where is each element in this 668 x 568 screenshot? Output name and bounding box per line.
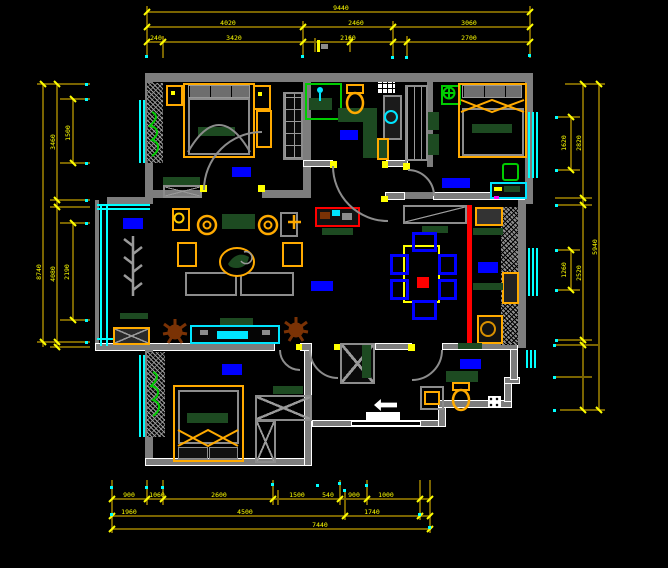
furniture-curves — [175, 85, 525, 446]
dim-bot-r1c[interactable]: 2600 — [211, 491, 227, 499]
door-arc-bedroom2 — [280, 350, 300, 370]
dim-left-total[interactable]: 8740 — [35, 264, 43, 280]
linework-layer: 9440 4020 2460 3060 240 3420 2160 2700 9… — [0, 0, 668, 568]
dim-bot-r1d[interactable]: 1500 — [289, 491, 305, 499]
sofa-right-star — [288, 215, 301, 229]
door-arc-entry-closet — [310, 350, 338, 378]
sofa-swirl-left — [198, 216, 216, 234]
dim-bot-r2c[interactable]: 1740 — [364, 508, 380, 516]
dim-left-m2[interactable]: 4080 — [49, 266, 57, 282]
dim-bot-r1f[interactable]: 900 — [348, 491, 360, 499]
dim-top-r2a[interactable]: 4020 — [220, 19, 236, 27]
dim-top-r3a[interactable]: 240 — [150, 34, 162, 42]
dimension-texts[interactable]: 9440 4020 2460 3060 240 3420 2160 2700 9… — [35, 4, 599, 529]
dim-left-m1[interactable]: 3460 — [49, 134, 57, 150]
dim-top-total[interactable]: 9440 — [333, 4, 349, 12]
sofa-swirl-right-inner — [265, 222, 272, 229]
sofa-swirl-right — [259, 216, 277, 234]
kitchen-basin-circle — [481, 322, 495, 336]
dim-bot-r1g[interactable]: 1000 — [378, 491, 394, 499]
dim-top-r3c[interactable]: 2160 — [340, 34, 356, 42]
plant-bay-branch — [124, 236, 142, 296]
plant-bedroom1 — [150, 112, 158, 156]
dim-bot-r1a[interactable]: 900 — [123, 491, 135, 499]
dim-bot-r1e[interactable]: 540 — [322, 491, 334, 499]
dim-left-i2[interactable]: 2190 — [63, 264, 71, 280]
toilet-bath2 — [453, 390, 469, 410]
dim-right-i2[interactable]: 1260 — [560, 262, 568, 278]
sofa-left-table-dish — [175, 214, 184, 223]
dim-bot-r1b[interactable]: 1060 — [149, 491, 165, 499]
dim-right-m2[interactable]: 2520 — [575, 265, 583, 281]
washer-drum — [385, 111, 397, 123]
door-arc-bedroom1 — [204, 132, 262, 190]
door-arc-bath1 — [333, 166, 388, 221]
sofa-swirl-left-inner — [204, 222, 211, 229]
plants — [124, 112, 308, 416]
dim-left-i1[interactable]: 1500 — [64, 125, 72, 141]
dimension-lines — [37, 6, 605, 533]
door-arc-bath2 — [412, 350, 442, 380]
dim-top-r3d[interactable]: 2700 — [461, 34, 477, 42]
bed3-canopy-zigzag — [461, 100, 524, 112]
dim-top-r2b[interactable]: 2460 — [348, 19, 364, 27]
dim-bot-total[interactable]: 7440 — [312, 521, 328, 529]
plant-pot-left — [163, 319, 187, 343]
dim-top-r2c[interactable]: 3060 — [461, 19, 477, 27]
plant-bedroom2 — [151, 372, 159, 416]
shower-head — [317, 87, 323, 93]
bed2-foot-zigzag — [178, 430, 238, 446]
dim-right-total[interactable]: 5940 — [591, 239, 599, 255]
dim-bot-r2b[interactable]: 4500 — [237, 508, 253, 516]
dim-right-i1[interactable]: 1620 — [560, 135, 568, 151]
toilet-bath1 — [347, 93, 363, 113]
grip-dots — [85, 54, 558, 529]
plant-pot-right — [284, 317, 308, 341]
dim-top-r3b[interactable]: 3420 — [226, 34, 242, 42]
door-arc-bedroom3 — [408, 170, 434, 196]
bed1-duvet-curve — [188, 125, 250, 152]
cad-floorplan-canvas[interactable]: 9440 4020 2460 3060 240 3420 2160 2700 9… — [0, 0, 668, 568]
dim-right-m1[interactable]: 2820 — [575, 135, 583, 151]
dim-bot-r2a[interactable]: 1960 — [121, 508, 137, 516]
